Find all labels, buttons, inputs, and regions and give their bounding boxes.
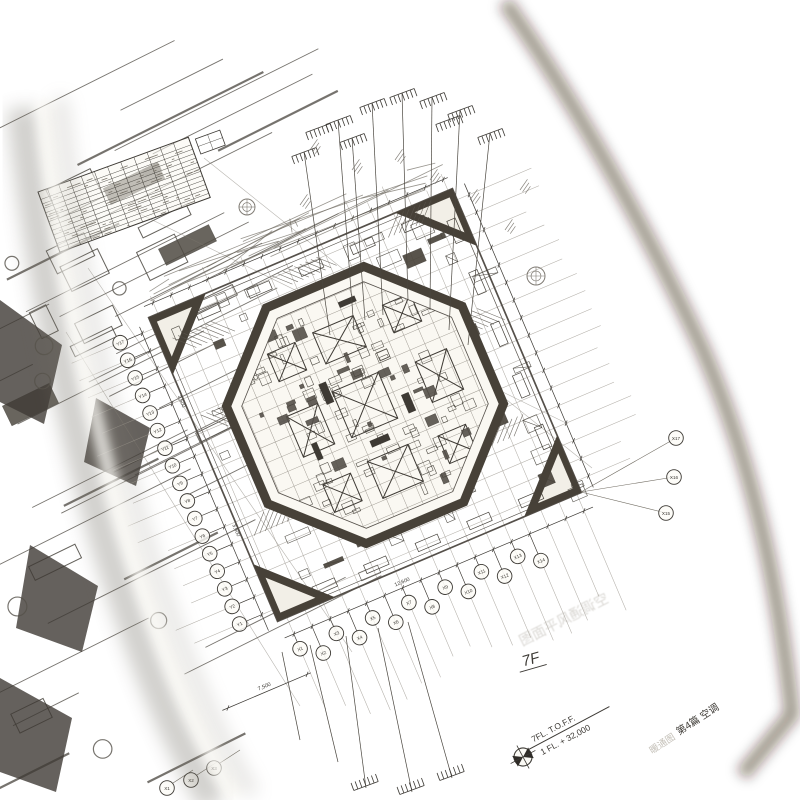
page-gutter: [0, 0, 800, 800]
photo-scene: { "scene": { "description_colors": { "ta…: [0, 0, 800, 800]
